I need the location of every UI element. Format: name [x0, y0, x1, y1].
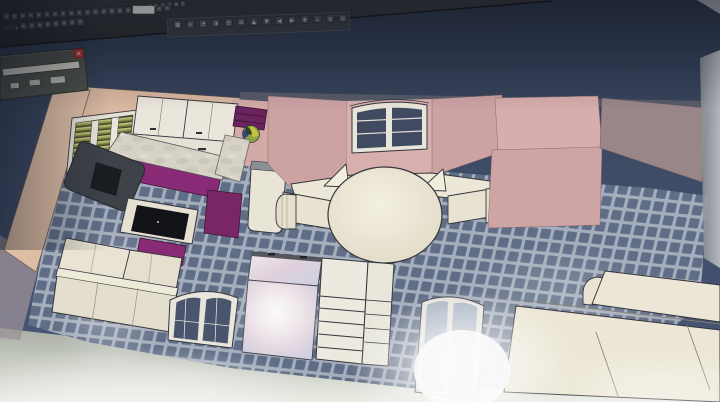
toolbar-b-button-15-glyph	[119, 9, 121, 11]
toolbar-b-button-13-glyph	[103, 10, 105, 12]
toolbar-b-button-6-glyph	[46, 13, 48, 15]
pan-left-icon: ◀	[277, 19, 281, 25]
chevron-down-icon: ▾	[16, 26, 18, 31]
arched-window	[350, 100, 429, 153]
toolbar-b-button-16-glyph	[127, 9, 129, 11]
grid-view-icon: ▦	[175, 23, 180, 29]
pan-up-icon: ▲	[252, 20, 256, 26]
cabinet-end-panel	[204, 190, 242, 238]
toolbar-c-button-1-glyph	[22, 25, 24, 27]
toolbar-b-button-8-glyph	[62, 12, 64, 14]
toolbar-c-button-4-glyph	[47, 23, 49, 25]
toolbar-b-button-4-glyph	[30, 14, 32, 16]
zoom-out-icon: ◑	[214, 21, 219, 27]
toolbar-c-button-7-glyph	[71, 21, 73, 23]
toolbar-c-button-6-glyph	[63, 22, 65, 24]
toolbar-b-button-7-glyph	[54, 13, 56, 15]
toolbar-a-button-6-glyph	[175, 3, 177, 5]
pan-right-icon: ▶	[290, 18, 294, 24]
dialog-button-3[interactable]	[50, 76, 66, 84]
toolbar-b-button-1-glyph	[5, 15, 7, 17]
toolbar-b-button-9-glyph	[70, 12, 72, 14]
walk-view-icon: ⊥	[315, 17, 320, 23]
zoom-in-icon: ◔	[201, 22, 206, 28]
dialog-close-button[interactable]: ✕	[74, 49, 84, 58]
toolbar-b-button-18-glyph	[166, 7, 168, 9]
drawer-chest	[316, 258, 368, 364]
arched-door-right	[415, 297, 484, 400]
toolbar-value-field[interactable]	[133, 6, 155, 14]
room-3d-view[interactable]	[4, 85, 720, 402]
tile-windows-icon: ⊞	[226, 21, 230, 27]
toolbar-b-button-5-glyph	[38, 14, 40, 16]
new-window-icon: ⊠	[239, 20, 243, 26]
close-icon: ✕	[76, 50, 82, 57]
arched-door-left	[168, 291, 238, 348]
toolbar-b-button-3-glyph	[22, 14, 24, 16]
toolbar-b-button-17-glyph	[158, 7, 160, 9]
toolbar-c-button-8-glyph	[79, 21, 81, 23]
center-view-icon: ✚	[303, 18, 308, 24]
toolbar-b-button-2-glyph	[13, 15, 15, 17]
dialog-button-2[interactable]	[29, 79, 40, 86]
orbit-icon: ◎	[341, 16, 346, 22]
sum-icon: Σ	[181, 1, 184, 7]
dialog-button-1[interactable]	[10, 82, 19, 89]
iridescent-cabinet	[242, 252, 322, 360]
layers-icon: ≣	[328, 17, 332, 23]
round-dining-table	[328, 167, 442, 263]
toolbar-c-button-3-glyph	[39, 24, 41, 26]
monitor-photo: Σ ▾ ▦≡◔◑⊞⊠▲▼◀▶✚⊥≣◎ ✕	[0, 0, 720, 402]
toolbar-b-button-11-glyph	[86, 11, 88, 13]
toolbar-b-button-12-glyph	[94, 11, 96, 13]
toolbar-c-button-5-glyph	[55, 22, 57, 24]
toolbar-b-button-10-glyph	[78, 12, 80, 14]
list-view-icon: ≡	[188, 22, 192, 28]
drawer-column	[362, 262, 394, 366]
pan-down-icon: ▼	[265, 19, 269, 25]
toolbar-b-button-14-glyph	[111, 10, 113, 12]
toolbar-c-button-2-glyph	[31, 24, 33, 26]
